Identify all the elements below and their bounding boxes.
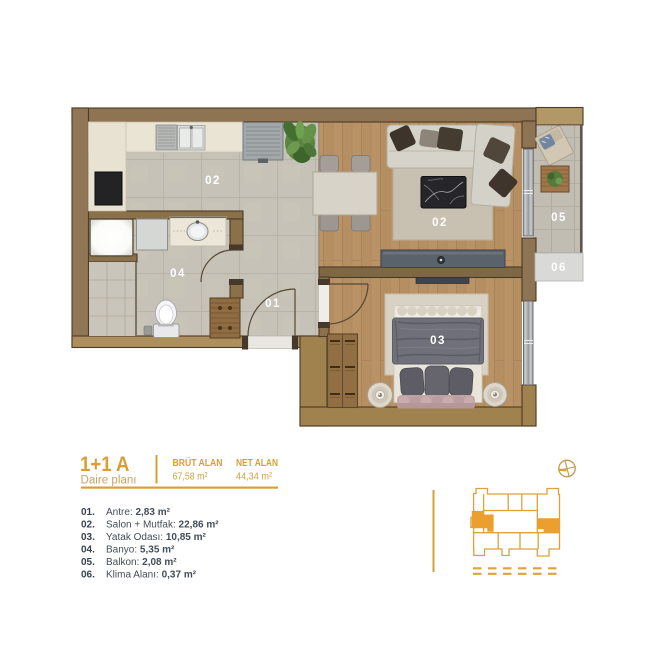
svg-text:NET ALAN: NET ALAN xyxy=(236,457,278,469)
svg-text:02.: 02. xyxy=(81,520,95,531)
svg-text:05.: 05. xyxy=(81,557,95,568)
svg-text:Daire planı: Daire planı xyxy=(81,475,137,487)
svg-text:Klima Alanı: 0,37 m²: Klima Alanı: 0,37 m² xyxy=(106,570,197,581)
svg-text:01: 01 xyxy=(265,298,281,310)
svg-text:03.: 03. xyxy=(81,532,95,543)
svg-text:04.: 04. xyxy=(81,545,95,556)
svg-text:Banyo: 5,35 m²: Banyo: 5,35 m² xyxy=(106,545,175,556)
svg-text:05: 05 xyxy=(551,212,567,224)
svg-text:01.: 01. xyxy=(81,507,95,518)
svg-text:BRÜT ALAN: BRÜT ALAN xyxy=(173,456,223,469)
svg-text:44,34 m²: 44,34 m² xyxy=(236,471,272,483)
svg-text:67,58 m²: 67,58 m² xyxy=(173,471,208,483)
svg-text:06.: 06. xyxy=(81,570,95,581)
svg-text:06: 06 xyxy=(551,262,567,274)
svg-text:Balkon: 2,08 m²: Balkon: 2,08 m² xyxy=(106,557,177,568)
svg-text:Yatak Odası: 10,85 m²: Yatak Odası: 10,85 m² xyxy=(106,532,207,543)
svg-text:03: 03 xyxy=(430,335,446,347)
svg-text:1+1 A: 1+1 A xyxy=(80,452,130,476)
svg-text:Antre: 2,83 m²: Antre: 2,83 m² xyxy=(106,507,171,518)
svg-text:02: 02 xyxy=(432,217,448,229)
svg-text:04: 04 xyxy=(170,268,186,280)
svg-text:Salon + Mutfak: 22,86 m²: Salon + Mutfak: 22,86 m² xyxy=(106,520,219,531)
svg-text:02: 02 xyxy=(205,175,221,187)
